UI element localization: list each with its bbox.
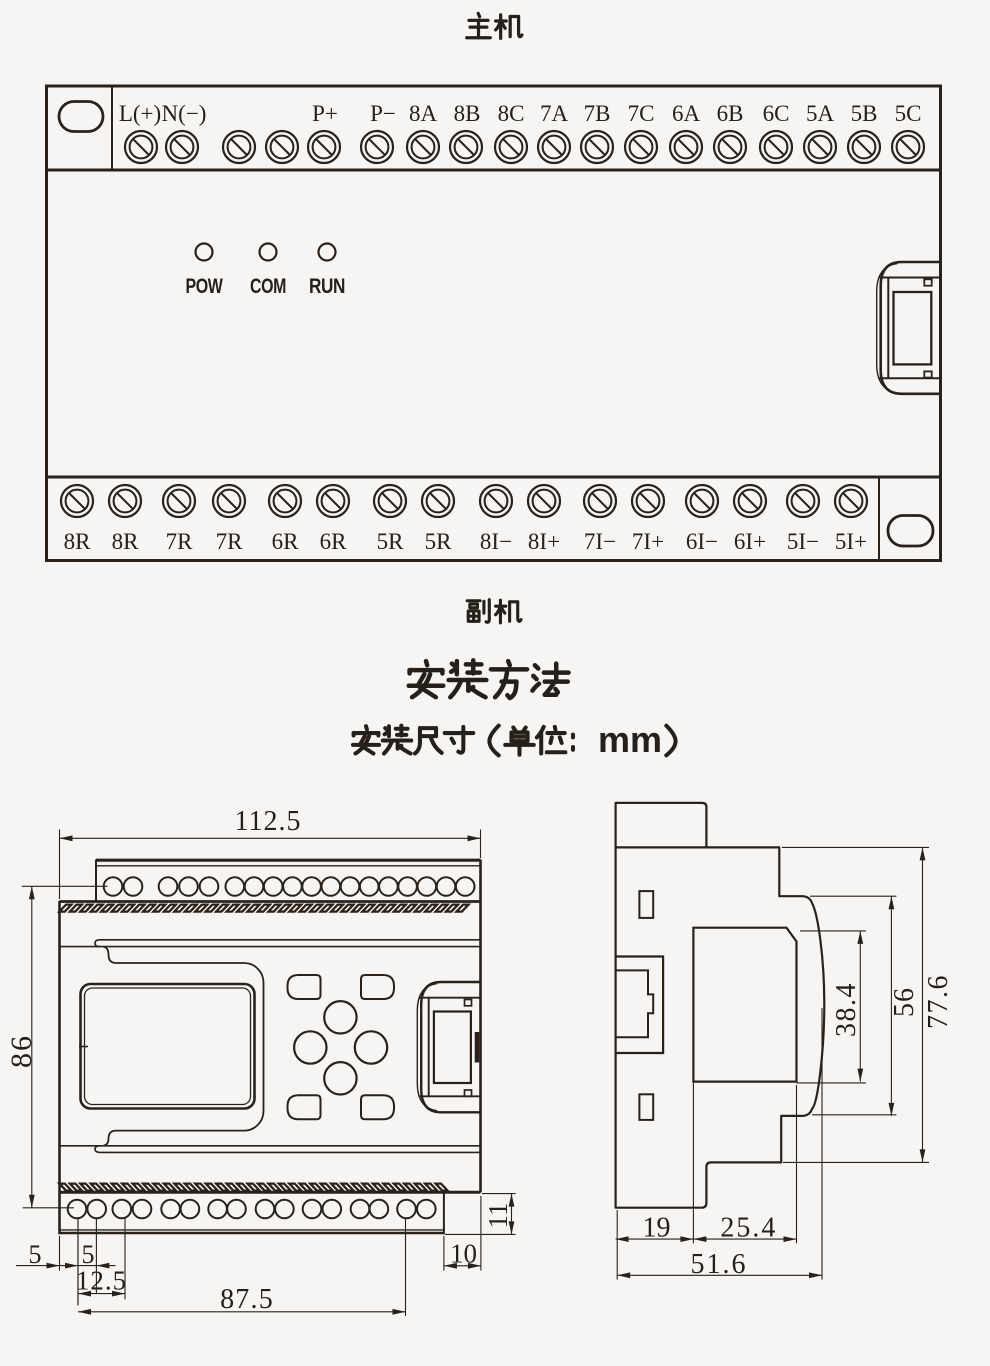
svg-text:P+: P+ [312, 101, 338, 126]
svg-text:8B: 8B [454, 101, 481, 126]
svg-text:10: 10 [450, 1239, 477, 1269]
svg-text:11: 11 [483, 1203, 513, 1229]
svg-text:8C: 8C [498, 101, 525, 126]
svg-text:N(−): N(−) [162, 101, 207, 126]
svg-text:25.4: 25.4 [720, 1213, 777, 1244]
svg-text:6I+: 6I+ [734, 529, 766, 554]
svg-text:7R: 7R [216, 529, 244, 554]
svg-text:86: 86 [5, 1034, 38, 1068]
svg-text:6I−: 6I− [686, 529, 718, 554]
svg-text:L(+): L(+) [119, 101, 161, 126]
svg-text:6R: 6R [272, 529, 300, 554]
svg-text:87.5: 87.5 [220, 1284, 274, 1315]
svg-text:8R: 8R [64, 529, 92, 554]
svg-text:7R: 7R [166, 529, 194, 554]
svg-text:COM: COM [250, 275, 286, 298]
svg-text:8R: 8R [112, 529, 140, 554]
svg-text:7C: 7C [628, 101, 655, 126]
svg-text:5: 5 [29, 1240, 42, 1269]
svg-text:RUN: RUN [309, 275, 345, 298]
svg-text:8I+: 8I+ [528, 529, 560, 554]
svg-text:12.5: 12.5 [76, 1266, 127, 1296]
svg-text:5B: 5B [851, 101, 878, 126]
svg-text:7I+: 7I+ [632, 529, 664, 554]
svg-text:5I+: 5I+ [835, 529, 867, 554]
svg-text:112.5: 112.5 [235, 806, 302, 837]
svg-text:7A: 7A [540, 101, 569, 126]
svg-text:56: 56 [889, 987, 920, 1017]
svg-text:8A: 8A [409, 101, 438, 126]
svg-text:mm: mm [598, 719, 662, 760]
svg-text:5I−: 5I− [787, 529, 819, 554]
svg-text:51.6: 51.6 [691, 1249, 748, 1280]
svg-text:19: 19 [643, 1213, 671, 1244]
svg-text:7I−: 7I− [584, 529, 616, 554]
svg-text:6B: 6B [717, 101, 744, 126]
svg-text:77.6: 77.6 [923, 974, 954, 1029]
svg-text:6C: 6C [763, 101, 790, 126]
svg-text:POW: POW [186, 275, 224, 298]
svg-text:5A: 5A [806, 101, 835, 126]
svg-text:6R: 6R [320, 529, 348, 554]
svg-text:P−: P− [370, 101, 396, 126]
svg-text:6A: 6A [672, 101, 701, 126]
svg-text:5R: 5R [425, 529, 453, 554]
svg-text:5C: 5C [895, 101, 922, 126]
svg-text:7B: 7B [584, 101, 611, 126]
svg-text:38.4: 38.4 [831, 982, 862, 1037]
svg-text:5R: 5R [377, 529, 405, 554]
svg-text:8I−: 8I− [480, 529, 512, 554]
